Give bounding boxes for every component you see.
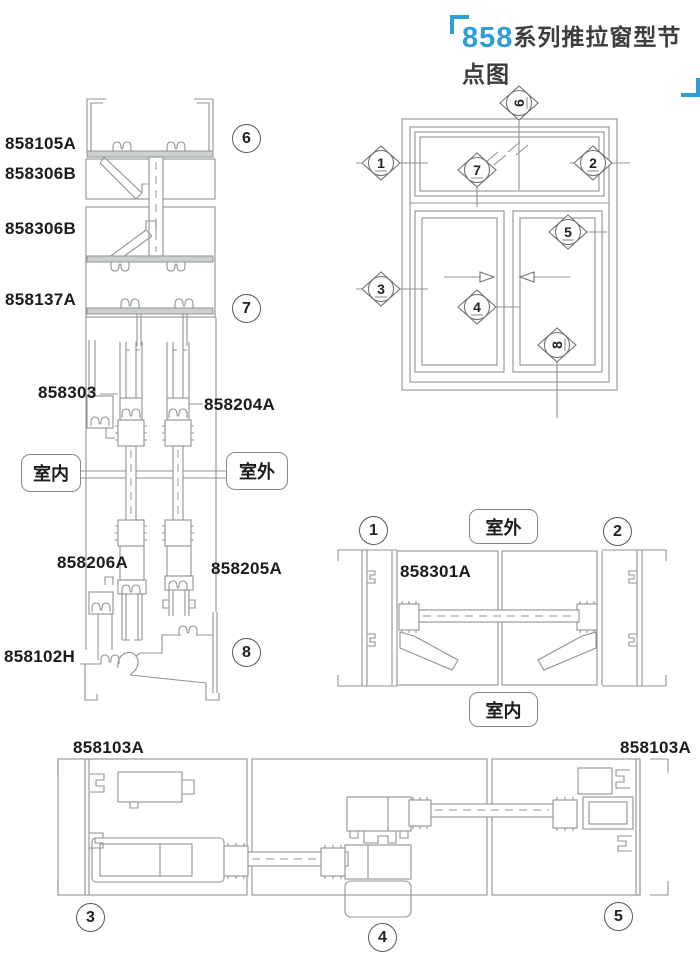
section-marker-1: 1 — [356, 146, 428, 180]
part-label-mullion: 858301A — [400, 562, 471, 582]
section-marker-4: 4 — [458, 290, 520, 324]
marker-number: 2 — [589, 155, 597, 171]
part-label-sash-left: 858206A — [57, 553, 128, 573]
detail-circle-4: 4 — [368, 923, 397, 952]
title-series-number: 858 — [462, 22, 513, 54]
marker-number: 8 — [549, 341, 565, 349]
part-label-bead-lower: 858306B — [5, 219, 76, 239]
room-label-inside-left: 室内 — [21, 454, 81, 492]
title-corner-bracket-top-left — [450, 15, 469, 34]
section-marker-7: 7 — [458, 153, 496, 207]
part-label-bottom-left: 858103A — [73, 738, 144, 758]
section-marker-5: 5 — [549, 215, 607, 249]
title-corner-bracket-bottom-right — [681, 78, 700, 97]
glass-hatch-marks — [486, 142, 528, 165]
marker-number: 4 — [473, 299, 481, 315]
bottom-section-drawing — [58, 759, 668, 917]
part-label-rail: 858204A — [204, 395, 275, 415]
section-marker-6: 6 — [500, 86, 538, 190]
marker-number: 7 — [473, 162, 481, 178]
slide-arrow-right — [444, 272, 494, 282]
part-label-sash-right: 858205A — [211, 559, 282, 579]
section-marker-3: 3 — [356, 272, 428, 306]
marker-number: 3 — [377, 281, 385, 297]
section-marker-2: 2 — [570, 146, 630, 180]
part-label-sill: 858102H — [4, 647, 75, 667]
node-diagram-linework: 1 2 7 6 — [0, 0, 700, 965]
part-label-bead-upper: 858306B — [5, 164, 76, 184]
room-label-outside-left: 室外 — [226, 452, 288, 490]
marker-number: 6 — [511, 99, 527, 107]
diagram-title: 858系列推拉窗型节点图 — [450, 15, 700, 97]
detail-circle-2: 2 — [603, 517, 632, 546]
detail-circle-1: 1 — [359, 516, 388, 545]
section-marker-8: 8 — [538, 328, 576, 418]
detail-circle-8: 8 — [232, 638, 261, 667]
detail-circle-3: 3 — [76, 903, 105, 932]
elevation-drawing: 1 2 7 6 — [356, 86, 630, 418]
detail-circle-7: 7 — [232, 294, 261, 323]
slide-arrow-left — [520, 272, 570, 282]
part-label-track: 858303 — [38, 383, 97, 403]
part-label-top-frame: 858105A — [5, 134, 76, 154]
room-label-inside-mid: 室内 — [469, 692, 538, 727]
detail-circle-6: 6 — [232, 124, 261, 153]
marker-number: 1 — [377, 155, 385, 171]
room-label-outside-mid: 室外 — [469, 509, 538, 544]
detail-circle-5: 5 — [604, 902, 633, 931]
horizontal-section-drawing — [338, 550, 666, 686]
part-label-bottom-right: 858103A — [620, 738, 691, 758]
marker-number: 5 — [564, 224, 572, 240]
part-label-mid-frame: 858137A — [5, 290, 76, 310]
